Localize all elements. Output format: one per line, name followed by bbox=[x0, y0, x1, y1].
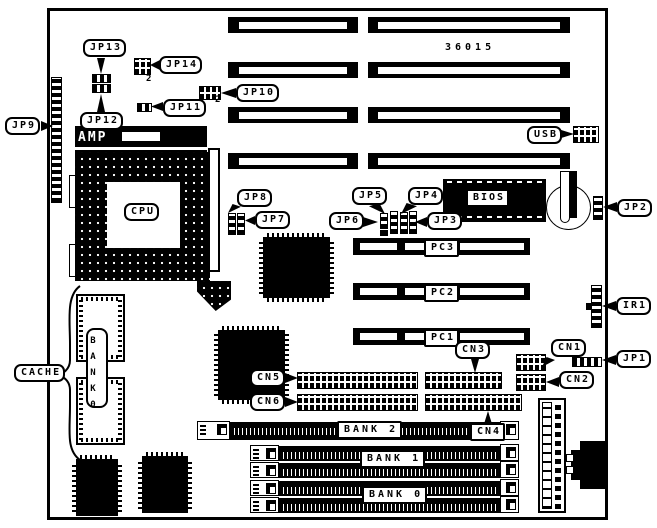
label-pc1: PC1 bbox=[424, 329, 459, 347]
socket-clip-top bbox=[69, 175, 76, 208]
latch-flag bbox=[506, 424, 516, 435]
label-jp13: JP13 bbox=[83, 39, 126, 57]
label-cn6: CN6 bbox=[250, 393, 285, 411]
jp3-jumper-a bbox=[390, 211, 398, 234]
chip-pins bbox=[222, 326, 281, 330]
jp13-jumper-a bbox=[92, 74, 111, 83]
amp-window bbox=[122, 132, 160, 141]
jp3-jumper-b bbox=[409, 211, 417, 234]
chip-pins bbox=[118, 299, 122, 357]
latch-lines bbox=[253, 449, 259, 459]
label-cpu: CPU bbox=[124, 203, 159, 221]
isa-slot-1-left bbox=[228, 17, 358, 33]
latch-lines bbox=[253, 501, 259, 511]
jp10-pin2-marker: 2 bbox=[215, 95, 220, 105]
label-jp6: JP6 bbox=[329, 212, 364, 230]
label-jp1: JP1 bbox=[616, 350, 651, 368]
slot-key bbox=[239, 158, 347, 165]
label-ir1: IR1 bbox=[616, 297, 651, 315]
label-jp7: JP7 bbox=[255, 211, 290, 229]
label-pc2: PC2 bbox=[424, 284, 459, 302]
cn1-header bbox=[516, 354, 546, 371]
jp11-jumper bbox=[137, 103, 152, 112]
latch-flag bbox=[266, 465, 276, 476]
jp13-jumper-b bbox=[92, 84, 111, 93]
label-pc3: PC3 bbox=[424, 239, 459, 257]
chip-pins bbox=[118, 382, 122, 440]
cn3-header bbox=[425, 372, 502, 389]
jp1-jumper bbox=[572, 357, 602, 367]
bios-dash-top bbox=[447, 181, 542, 183]
chip-pins bbox=[118, 463, 122, 512]
jp2-jumper bbox=[593, 196, 603, 220]
power-pins-solid bbox=[555, 402, 561, 509]
dram-chip-b bbox=[142, 456, 188, 513]
slot-key bbox=[460, 288, 524, 295]
label-cache: CACHE bbox=[14, 364, 65, 382]
label-cn4: CN4 bbox=[470, 423, 505, 441]
chip-pins bbox=[188, 460, 192, 509]
usb-header bbox=[573, 126, 599, 143]
slot-key bbox=[378, 112, 560, 119]
cn2-header bbox=[516, 374, 546, 391]
label-cn1: CN1 bbox=[551, 339, 586, 357]
slot-key bbox=[405, 243, 425, 250]
simm-latch bbox=[197, 421, 230, 440]
keyboard-din-connector bbox=[580, 441, 607, 489]
label-jp10: JP10 bbox=[236, 84, 279, 102]
slot-key bbox=[360, 243, 397, 250]
label-jp8: JP8 bbox=[237, 189, 272, 207]
qfp-chip-south bbox=[218, 330, 285, 400]
label-cn3: CN3 bbox=[455, 341, 490, 359]
latch-flag bbox=[506, 447, 516, 458]
jp8-jumper bbox=[228, 213, 236, 235]
simm-latch bbox=[250, 480, 279, 496]
din-notch bbox=[566, 454, 574, 462]
latch-flag bbox=[506, 499, 516, 510]
simm-latch bbox=[250, 445, 279, 461]
chip-pins bbox=[146, 452, 184, 456]
simm-latch bbox=[500, 444, 519, 461]
label-jp5: JP5 bbox=[352, 187, 387, 205]
motherboard-diagram: 36015 PC3 PC2 PC1 AMP CPU JP13 J bbox=[0, 0, 657, 528]
label-bank1: BANK 1 bbox=[360, 450, 425, 468]
chip-pins bbox=[80, 455, 114, 459]
jp14-pin2-marker: 2 bbox=[146, 74, 151, 84]
zif-lever bbox=[208, 148, 220, 272]
label-cn5: CN5 bbox=[250, 369, 285, 387]
slot-key bbox=[239, 22, 347, 29]
chip-pins bbox=[267, 298, 326, 302]
jp4-jumper bbox=[400, 212, 408, 234]
latch-flag bbox=[266, 483, 276, 494]
slot-key bbox=[405, 333, 425, 340]
label-jp2: JP2 bbox=[617, 199, 652, 217]
battery-clip bbox=[560, 171, 570, 223]
chip-pins bbox=[267, 233, 326, 237]
simm-contacts bbox=[283, 504, 496, 511]
latch-flag bbox=[506, 482, 516, 493]
simm-latch bbox=[500, 496, 519, 513]
chip-pins bbox=[81, 297, 120, 301]
label-jp9: JP9 bbox=[5, 117, 40, 135]
din-notch bbox=[566, 466, 574, 474]
battery-clip-dark bbox=[570, 171, 577, 218]
isa-slot-4-right bbox=[368, 153, 570, 169]
ir1-header bbox=[591, 285, 602, 328]
label-jp3: JP3 bbox=[427, 212, 462, 230]
isa-slot-2-right bbox=[368, 62, 570, 78]
slot-key bbox=[239, 67, 347, 74]
label-jp12: JP12 bbox=[80, 112, 123, 130]
chip-pins bbox=[259, 241, 263, 294]
cn4-header bbox=[425, 394, 522, 411]
label-cn2: CN2 bbox=[559, 371, 594, 389]
slot-key bbox=[460, 333, 524, 340]
qfp-chip-north bbox=[263, 237, 330, 298]
isa-slot-4-left bbox=[228, 153, 358, 169]
label-bios: BIOS bbox=[466, 189, 509, 207]
label-jp4: JP4 bbox=[408, 187, 443, 205]
jp14-jumper bbox=[134, 58, 151, 75]
chip-pins bbox=[330, 241, 334, 294]
slot-key bbox=[378, 158, 560, 165]
jp9-header bbox=[51, 77, 62, 203]
latch-flag bbox=[506, 464, 516, 475]
isa-slot-1-right bbox=[368, 17, 570, 33]
slot-key bbox=[378, 67, 560, 74]
jp6-jumper bbox=[380, 230, 388, 236]
slot-key bbox=[460, 243, 524, 250]
latch-lines bbox=[253, 484, 259, 494]
slot-key bbox=[405, 288, 425, 295]
chip-pins bbox=[214, 334, 218, 396]
label-jp11: JP11 bbox=[163, 99, 206, 117]
socket-clip-bottom bbox=[69, 244, 76, 277]
latch-flag bbox=[266, 500, 276, 511]
label-usb: USB bbox=[527, 126, 562, 144]
simm-latch bbox=[250, 497, 279, 513]
label-bank2: BANK 2 bbox=[337, 421, 402, 439]
label-bank0-chip: BANK0 bbox=[86, 328, 108, 408]
simm-latch bbox=[250, 462, 279, 478]
label-jp14: JP14 bbox=[159, 56, 202, 74]
simm-contacts bbox=[283, 469, 496, 476]
amp-label: AMP bbox=[78, 130, 107, 145]
dram-chip-a bbox=[76, 459, 118, 516]
simm-latch bbox=[500, 479, 519, 496]
latch-flag bbox=[266, 448, 276, 459]
simm-latch bbox=[500, 461, 519, 478]
chip-pins bbox=[72, 463, 76, 512]
isa-slot-3-right bbox=[368, 107, 570, 123]
chip-pins bbox=[285, 334, 289, 396]
isa-slot-3-left bbox=[228, 107, 358, 123]
power-connector bbox=[538, 398, 566, 513]
power-pins-outline bbox=[542, 402, 552, 509]
chip-pins bbox=[81, 438, 120, 442]
slot-key bbox=[239, 112, 347, 119]
latch-lines bbox=[253, 466, 259, 476]
jp5-jumper bbox=[380, 213, 388, 229]
label-bank0: BANK 0 bbox=[362, 486, 427, 504]
chip-pins bbox=[138, 460, 142, 509]
slot-key bbox=[378, 22, 560, 29]
cn5-header bbox=[297, 372, 418, 389]
slot-key bbox=[360, 288, 397, 295]
latch-lines bbox=[200, 425, 206, 435]
jp7-jumper bbox=[237, 213, 245, 235]
cn6-header bbox=[297, 394, 418, 411]
part-number: 36015 bbox=[445, 42, 495, 53]
isa-slot-2-left bbox=[228, 62, 358, 78]
latch-flag bbox=[217, 424, 227, 435]
slot-key bbox=[360, 333, 397, 340]
